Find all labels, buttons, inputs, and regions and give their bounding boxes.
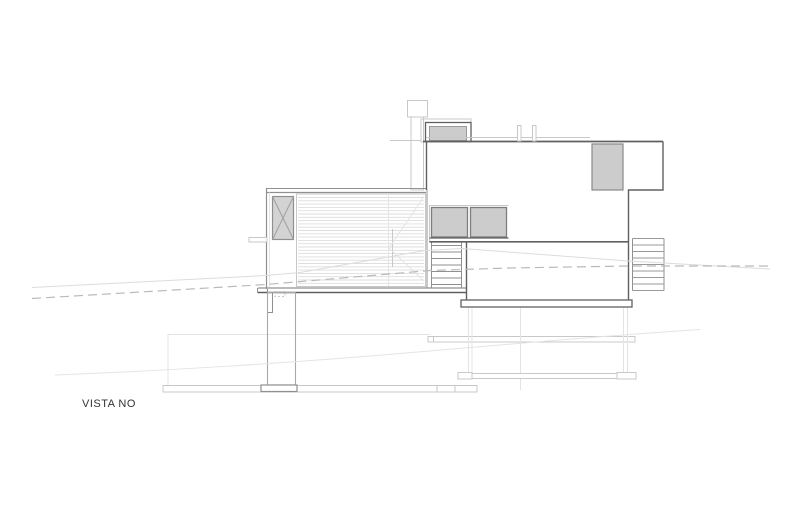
- stair-treads: [633, 239, 665, 291]
- roof-window: [592, 144, 623, 190]
- mid-level-windows: [429, 206, 509, 243]
- wall-ledge: [249, 238, 267, 243]
- elevation-drawing: [0, 0, 800, 530]
- view-label: VISTA NO: [82, 398, 136, 410]
- ladder-rungs: [432, 246, 462, 285]
- elevation-sheet: VISTA NO: [0, 0, 800, 530]
- support-column: [261, 293, 297, 392]
- clerestory-window: [390, 119, 471, 142]
- rear-deck-lower-beam: [458, 373, 636, 380]
- rear-deck-upper-beam: [428, 337, 635, 343]
- foundation-outline: [168, 335, 430, 387]
- lower-volume-slab: [461, 300, 632, 307]
- left-wing-roof: [266, 189, 426, 193]
- louver-slats: [298, 198, 424, 284]
- column-footing: [261, 385, 297, 392]
- right-exterior-stairs: [633, 239, 665, 291]
- left-wing-wall: [249, 189, 270, 290]
- terrain-natural-curve: [55, 330, 700, 376]
- chimney: [408, 101, 428, 191]
- left-wing-floor-slab: [258, 288, 467, 313]
- ground-baseline: [163, 386, 477, 393]
- louver-window: [297, 194, 426, 287]
- roof-vent-posts: [518, 126, 537, 142]
- corner-glass-panel: [273, 197, 294, 240]
